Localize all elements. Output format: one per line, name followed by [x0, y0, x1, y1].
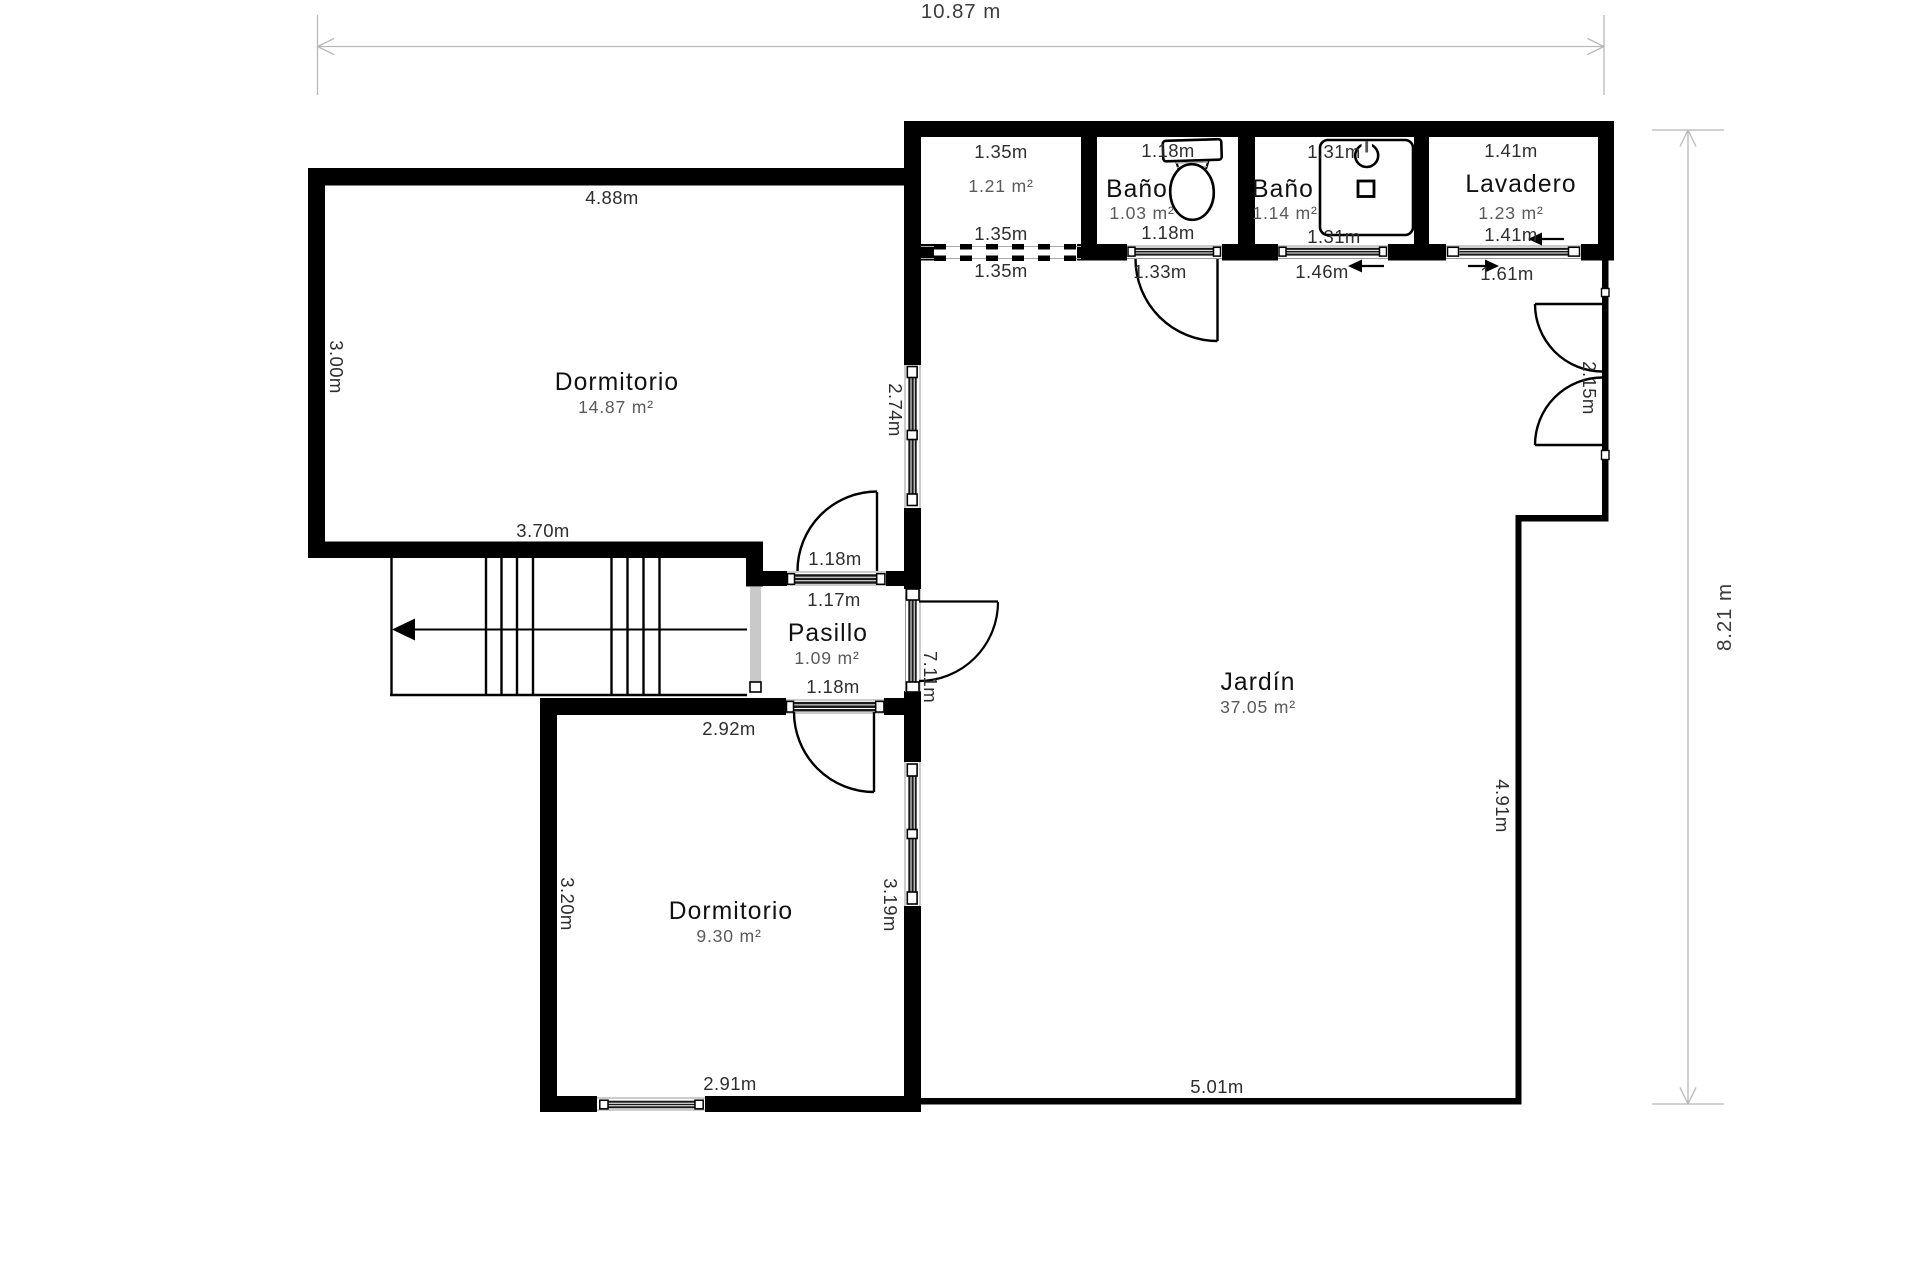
svg-text:3.00m: 3.00m — [326, 340, 347, 393]
svg-text:Pasillo: Pasillo — [788, 620, 868, 647]
svg-text:37.05 m²: 37.05 m² — [1220, 697, 1296, 717]
svg-text:1.41m: 1.41m — [1484, 224, 1537, 245]
svg-text:1.33m: 1.33m — [1133, 261, 1186, 282]
svg-text:1.03 m²: 1.03 m² — [1109, 203, 1174, 223]
svg-text:1.35m: 1.35m — [974, 260, 1027, 281]
svg-text:1.18m: 1.18m — [1141, 140, 1194, 161]
svg-text:1.35m: 1.35m — [974, 223, 1027, 244]
svg-text:1.17m: 1.17m — [807, 589, 860, 610]
svg-text:9.30 m²: 9.30 m² — [696, 926, 761, 946]
svg-text:Dormitorio: Dormitorio — [555, 369, 679, 396]
svg-text:2.74m: 2.74m — [885, 383, 906, 436]
svg-text:1.31m: 1.31m — [1307, 141, 1360, 162]
svg-text:5.01m: 5.01m — [1190, 1076, 1243, 1097]
svg-text:Baño: Baño — [1106, 176, 1168, 203]
svg-text:1.23 m²: 1.23 m² — [1478, 203, 1543, 223]
svg-text:3.20m: 3.20m — [557, 877, 578, 930]
svg-text:2.15m: 2.15m — [1579, 361, 1600, 414]
svg-text:1.21 m²: 1.21 m² — [968, 176, 1033, 196]
svg-text:Baño: Baño — [1252, 176, 1314, 203]
svg-text:14.87 m²: 14.87 m² — [578, 397, 654, 417]
svg-text:3.70m: 3.70m — [516, 520, 569, 541]
svg-text:1.18m: 1.18m — [806, 676, 859, 697]
svg-text:1.09 m²: 1.09 m² — [794, 648, 859, 668]
svg-text:1.61m: 1.61m — [1480, 263, 1533, 284]
svg-text:Lavadero: Lavadero — [1465, 171, 1576, 198]
svg-text:1.41m: 1.41m — [1484, 140, 1537, 161]
svg-text:Jardín: Jardín — [1221, 669, 1296, 696]
svg-text:2.92m: 2.92m — [702, 718, 755, 739]
svg-text:1.18m: 1.18m — [808, 548, 861, 569]
svg-text:3.19m: 3.19m — [880, 878, 901, 931]
svg-text:8.21 m: 8.21 m — [1713, 583, 1736, 651]
svg-text:1.14 m²: 1.14 m² — [1252, 203, 1317, 223]
svg-text:4.91m: 4.91m — [1492, 779, 1513, 832]
svg-text:2.91m: 2.91m — [703, 1073, 756, 1094]
svg-text:1.31m: 1.31m — [1307, 226, 1360, 247]
svg-text:7.11m: 7.11m — [920, 651, 941, 703]
svg-text:10.87 m: 10.87 m — [921, 0, 1001, 23]
svg-text:1.18m: 1.18m — [1141, 222, 1194, 243]
svg-text:1.46m: 1.46m — [1295, 261, 1348, 282]
svg-text:4.88m: 4.88m — [585, 187, 638, 208]
svg-text:1.35m: 1.35m — [974, 141, 1027, 162]
svg-text:Dormitorio: Dormitorio — [669, 898, 793, 925]
